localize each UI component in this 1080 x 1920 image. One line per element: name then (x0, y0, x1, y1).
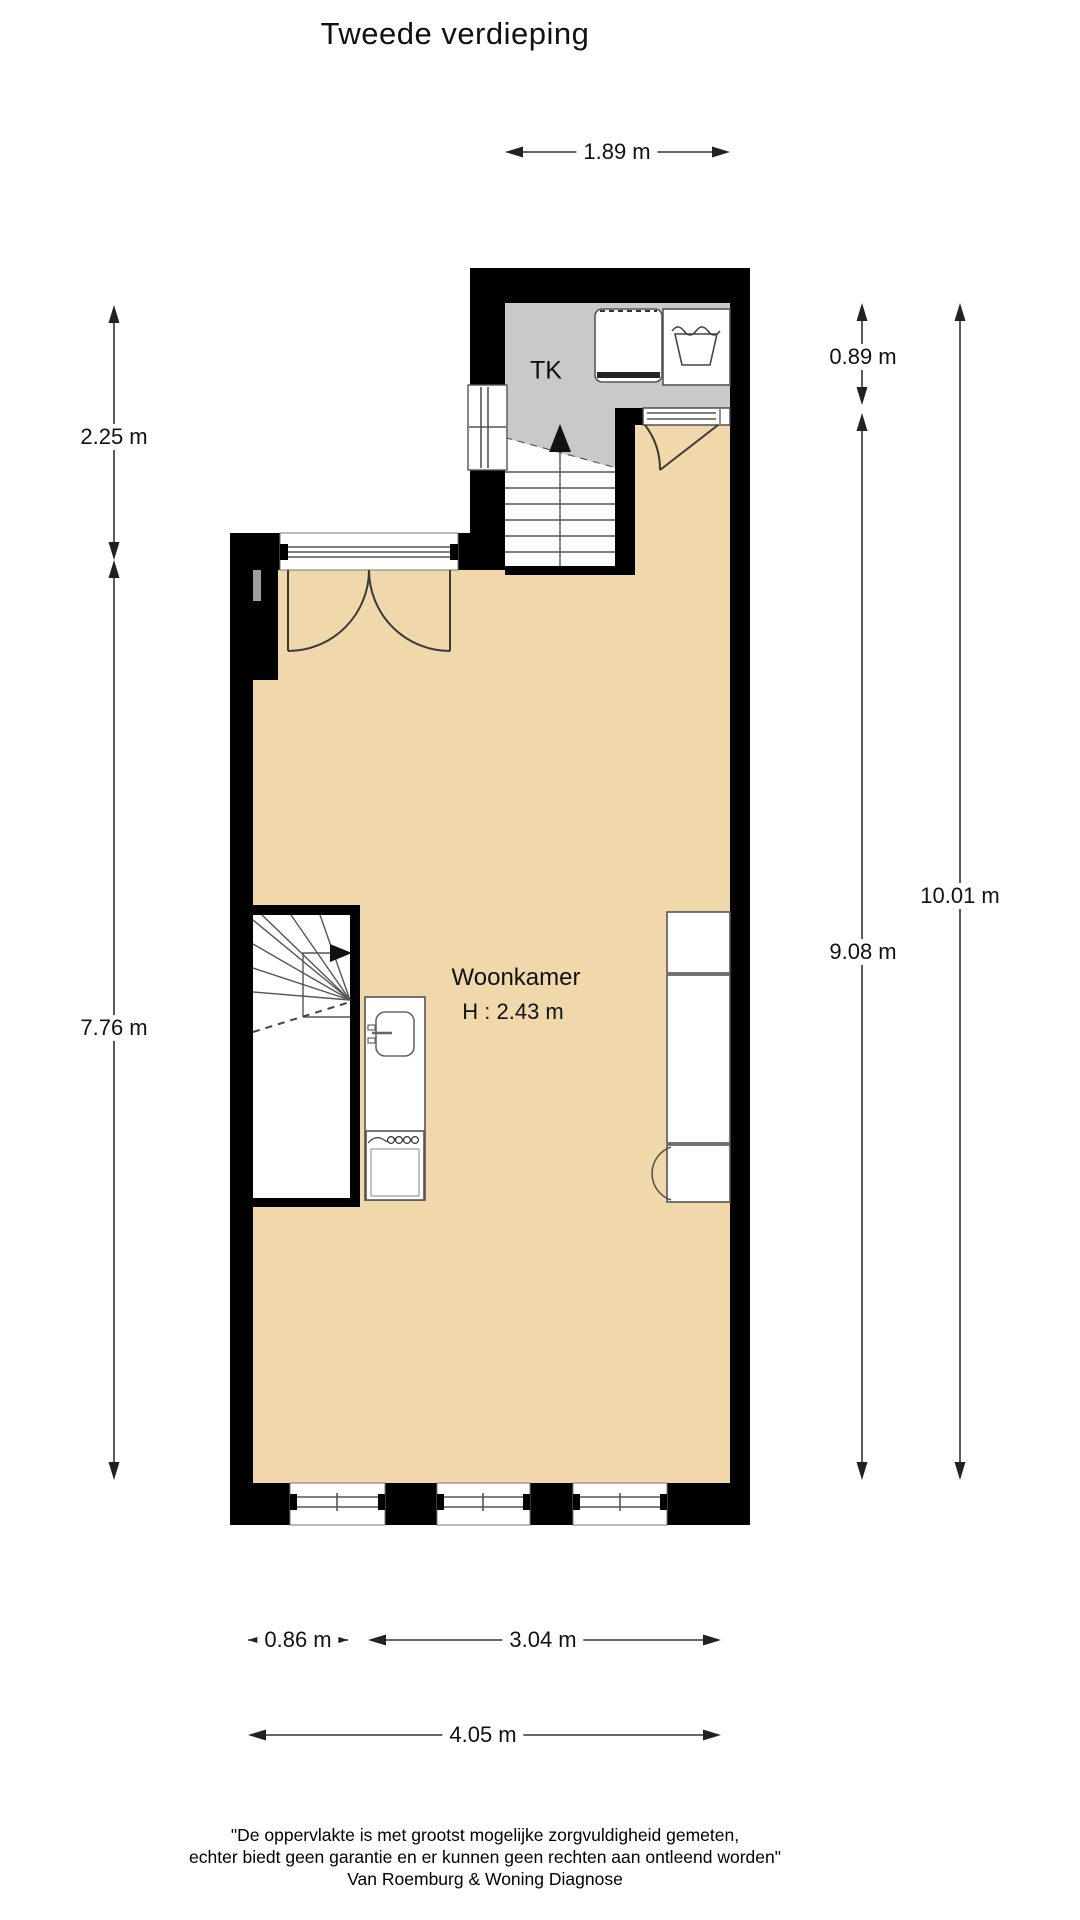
dimension-label-bottom-mid-width: 3.04 m (502, 1627, 583, 1653)
lower-staircase (250, 905, 360, 1207)
window-bottom-right (573, 1483, 667, 1525)
page-title: Tweede verdieping (321, 16, 590, 52)
window-upper-west (468, 385, 507, 470)
disclaimer-line-3: Van Roemburg & Woning Diagnose (165, 1868, 805, 1890)
dimension-label-upper-right-height: 0.89 m (822, 344, 903, 370)
washing-machine-icon (595, 309, 662, 382)
window-top-main (280, 533, 458, 570)
disclaimer-line-2: echter biedt geen garantie en er kunnen … (165, 1846, 805, 1868)
dimension-label-bottom-left-width: 0.86 m (257, 1627, 338, 1653)
window-bottom-middle (437, 1483, 530, 1525)
disclaimer-line-1: "De oppervlakte is met grootst mogelijke… (165, 1824, 805, 1846)
disclaimer-footer: "De oppervlakte is met grootst mogelijke… (165, 1824, 805, 1890)
floorplan-page: Tweede verdieping TK Woonkamer H : 2.43 … (0, 0, 1080, 1920)
laundry-sink-icon (663, 309, 730, 385)
dimension-label-bottom-total-width: 4.05 m (442, 1722, 523, 1748)
room-height-label: H : 2.43 m (462, 999, 563, 1025)
dimension-label-top-width: 1.89 m (576, 139, 657, 165)
dimension-label-lower-left-height: 7.76 m (73, 1015, 154, 1041)
dimension-label-upper-left-height: 2.25 m (73, 424, 154, 450)
closet-label: TK (530, 357, 562, 386)
dimension-label-total-right-height: 10.01 m (913, 883, 1007, 909)
dimension-label-inner-right-height: 9.08 m (822, 939, 903, 965)
stove-icon (366, 1131, 424, 1200)
room-name-label: Woonkamer (452, 964, 581, 992)
window-bottom-left (290, 1483, 385, 1525)
